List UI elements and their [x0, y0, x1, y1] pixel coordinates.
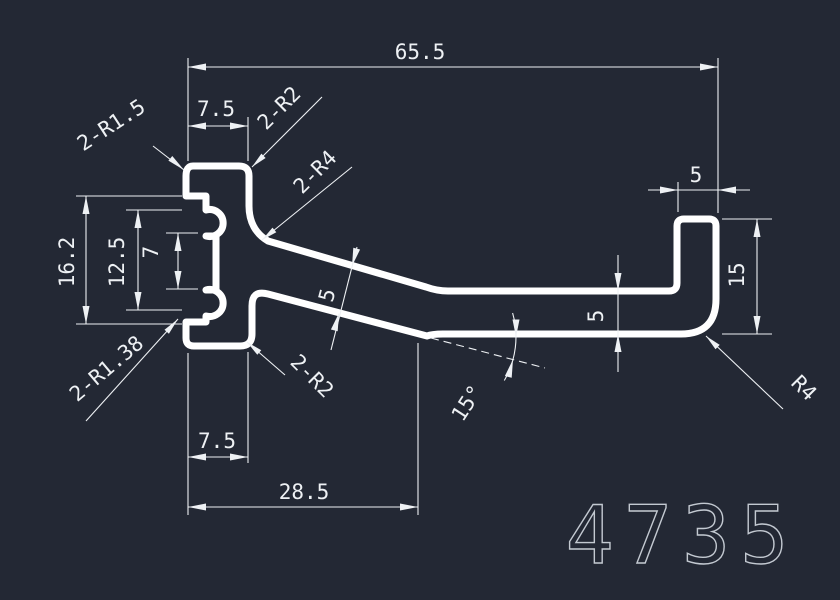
- dim-text-lobe-gap: 7: [139, 246, 163, 259]
- dim-text-head-height: 16.2: [55, 237, 79, 288]
- radius-text-top-right: 2-R2: [253, 82, 306, 135]
- arrowhead: [718, 187, 736, 194]
- arrowhead: [400, 504, 418, 511]
- dim-arm-flat-thickness: 5: [584, 255, 622, 372]
- radius-text-bottom-right: 2-R2: [286, 350, 339, 403]
- dim-text-arm-flat-thickness: 5: [584, 310, 608, 323]
- dim-lobe-span: 12.5: [105, 210, 182, 310]
- cad-viewport: 65.5 7.5 16.2 12.5: [0, 0, 840, 600]
- arrowhead: [83, 306, 90, 324]
- arrowhead: [135, 210, 142, 228]
- dim-text-head-top-width: 7.5: [197, 97, 235, 121]
- radius-label-hook-corner: R4: [706, 336, 821, 409]
- radius-label-arm-fillet: 2-R4: [262, 146, 352, 240]
- radius-label-bottom-right: 2-R2: [247, 342, 338, 402]
- radius-text-hook-corner: R4: [787, 371, 822, 406]
- arrowhead: [165, 319, 179, 334]
- dim-text-arm-angle: 15°: [447, 381, 488, 426]
- arrowhead: [175, 271, 182, 289]
- arrowhead: [83, 196, 90, 214]
- dim-text-arm-offset: 28.5: [279, 480, 330, 504]
- radius-text-top-left: 2-R1.5: [73, 94, 150, 155]
- arrowhead: [188, 504, 206, 511]
- arrowhead: [188, 454, 206, 461]
- dim-text-lobe-span: 12.5: [105, 237, 129, 288]
- arrowhead: [331, 313, 339, 331]
- dim-head-bottom-width: 7.5: [188, 352, 248, 515]
- arrowhead: [168, 156, 184, 170]
- arrowhead: [660, 187, 678, 194]
- dim-text-hook-width: 5: [690, 163, 703, 187]
- cad-canvas: 65.5 7.5 16.2 12.5: [0, 0, 840, 600]
- arrowhead: [505, 360, 513, 378]
- profile-outline: [186, 166, 716, 346]
- arrowhead: [188, 123, 206, 130]
- arrowhead: [188, 64, 206, 71]
- dim-hook-width: 5: [648, 163, 750, 212]
- dim-head-top-width: 7.5: [188, 97, 248, 161]
- dim-hook-height: 15: [722, 219, 772, 334]
- radius-label-top-left: 2-R1.5: [73, 94, 184, 170]
- dim-lobe-gap: 7: [139, 233, 198, 289]
- arrowhead: [754, 316, 761, 334]
- arrowhead: [230, 454, 248, 461]
- radius-label-bottom-left: 2-R1.38: [65, 319, 178, 421]
- arrowhead: [754, 219, 761, 237]
- arrowhead: [135, 292, 142, 310]
- dim-text-arm-slant-thickness: 5: [314, 286, 340, 304]
- dim-text-head-bottom-width: 7.5: [198, 429, 236, 453]
- arrowhead: [700, 64, 718, 71]
- arrowhead: [230, 123, 248, 130]
- radius-text-bottom-left: 2-R1.38: [65, 331, 148, 406]
- dim-text-hook-height: 15: [725, 262, 749, 287]
- radius-label-top-right: 2-R2: [252, 82, 322, 167]
- dim-arm-angle: 15°: [431, 313, 545, 426]
- radius-text-arm-fillet: 2-R4: [289, 146, 342, 199]
- part-number: 4735: [566, 489, 799, 582]
- arrowhead: [175, 233, 182, 251]
- dim-text-overall-width: 65.5: [395, 40, 446, 64]
- angle-extension-ray: [431, 338, 545, 368]
